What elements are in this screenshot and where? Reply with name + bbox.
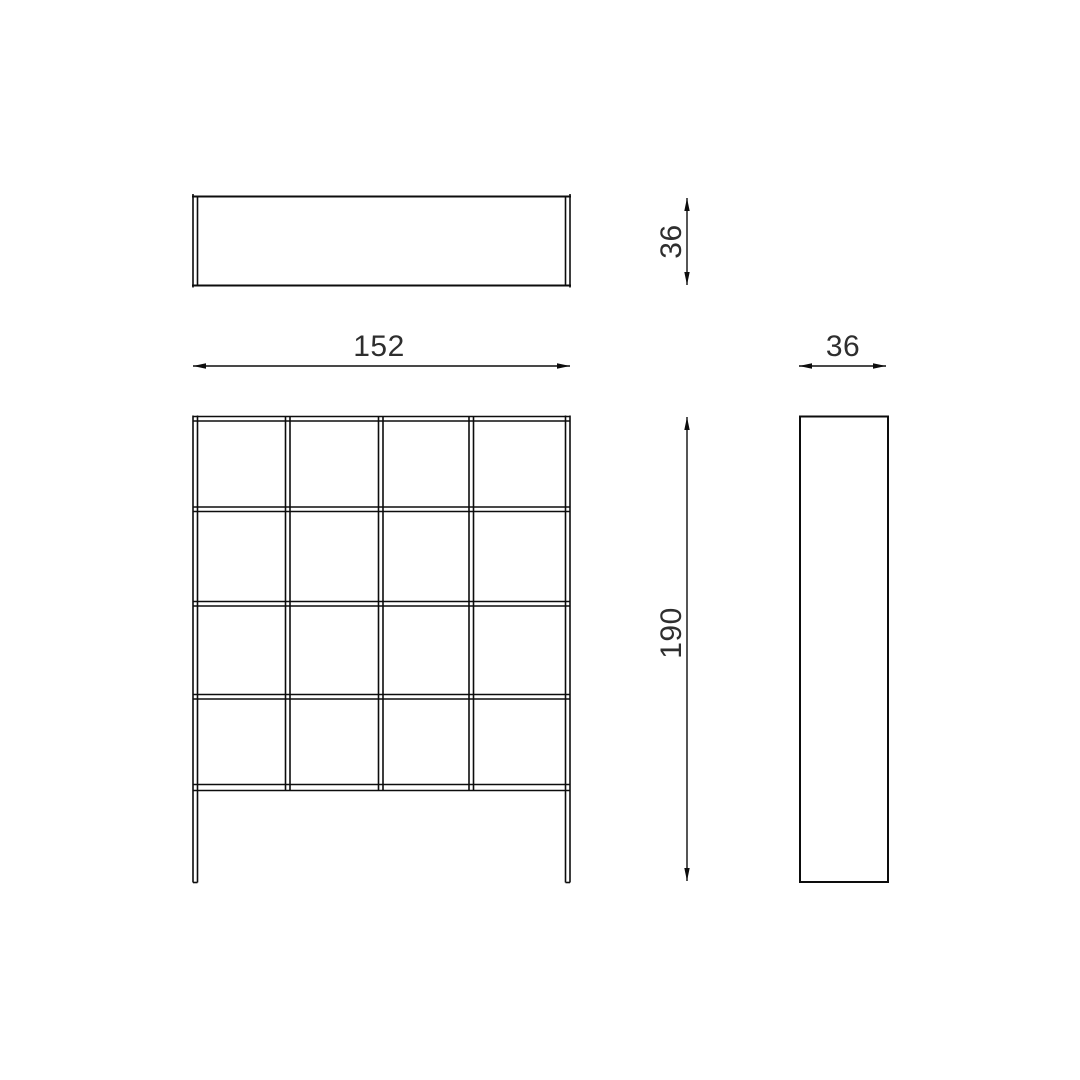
arrow-down-icon xyxy=(684,868,689,881)
arrow-left-icon xyxy=(193,363,206,368)
dimension-depth-side-label: 36 xyxy=(826,330,860,363)
dimension-depth-side: 36 xyxy=(799,330,886,369)
dimension-height-label: 190 xyxy=(655,607,688,659)
dimension-width: 152 xyxy=(193,330,570,369)
dimension-height: 190 xyxy=(655,417,690,881)
technical-drawing: 152 36 190 36 xyxy=(0,0,1080,1080)
arrow-right-icon xyxy=(557,363,570,368)
side-view xyxy=(800,417,888,883)
dimension-depth-top: 36 xyxy=(655,198,690,285)
arrow-left-icon xyxy=(799,363,812,368)
arrow-right-icon xyxy=(873,363,886,368)
dimension-depth-top-label: 36 xyxy=(655,224,688,258)
front-view xyxy=(193,416,570,883)
arrow-up-icon xyxy=(684,417,689,430)
top-view xyxy=(192,194,571,288)
side-view-outline xyxy=(800,417,888,883)
arrow-up-icon xyxy=(684,198,689,211)
arrow-down-icon xyxy=(684,272,689,285)
drawing-canvas: 152 36 190 36 xyxy=(0,0,1080,1080)
dimension-width-label: 152 xyxy=(353,330,405,363)
